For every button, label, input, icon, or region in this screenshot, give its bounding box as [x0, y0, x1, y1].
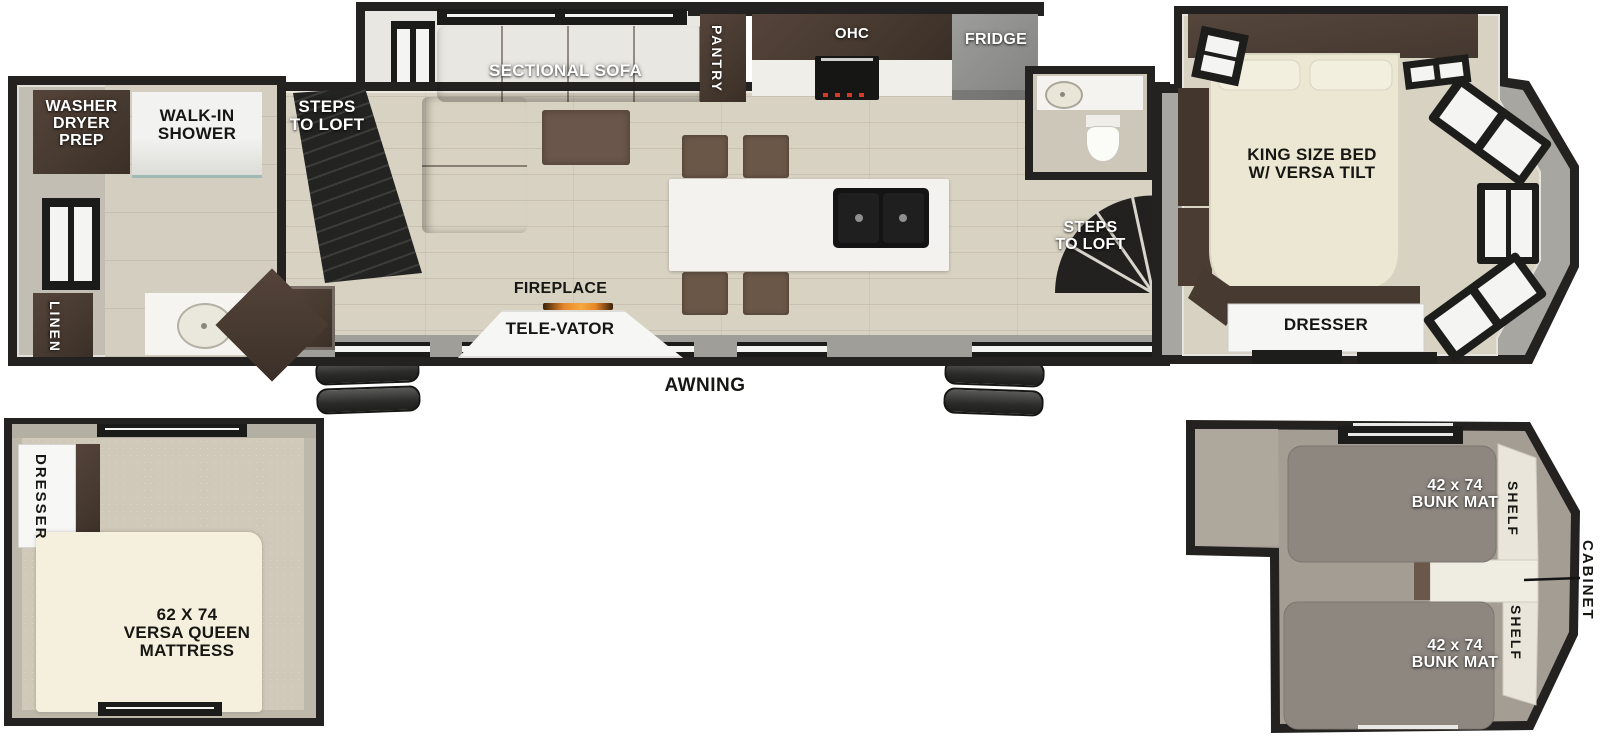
- washer-dryer-label: WASHER DRYER PREP: [33, 99, 130, 150]
- tire: [316, 385, 421, 415]
- dresser-label: DRESSER: [1228, 316, 1424, 334]
- island-stool: [682, 135, 728, 178]
- linen-label: LINEN: [47, 297, 62, 357]
- slideout-left-window: [391, 21, 435, 91]
- front-bedroom: KING SIZE BED W/ VERSA TILT DRESSER: [1152, 0, 1600, 375]
- pantry-label: PANTRY: [709, 18, 724, 100]
- loft-dresser-side: [76, 444, 100, 540]
- ohc-label: OHC: [782, 26, 922, 42]
- dresser-back: [1220, 286, 1420, 306]
- sectional-sofa-chaise: [422, 97, 527, 233]
- stove-handle: [821, 58, 873, 61]
- rv-floorplan-diagram: KING SIZE BED W/ VERSA TILT DRESSER WASH…: [0, 0, 1600, 740]
- bunk-carpet-left: [1195, 429, 1279, 546]
- linen-cabinet: [33, 293, 93, 357]
- awning-wall-window: [972, 342, 1157, 357]
- double-sink: [833, 188, 929, 248]
- bunk-mat-top-label: 42 x 74 BUNK MAT: [1401, 478, 1509, 512]
- fireplace-label: FIREPLACE: [498, 281, 623, 298]
- awning-wall-window: [737, 342, 827, 357]
- stove-knobs: [823, 93, 871, 97]
- kitchen-island: [669, 179, 949, 271]
- steps-to-loft-left-label: STEPS TO LOFT: [272, 98, 382, 134]
- queen-loft: DRESSER 62 X 74 VERSA QUEEN MATTRESS: [4, 418, 324, 726]
- steps-to-loft-right-label: STEPS TO LOFT: [1038, 220, 1143, 254]
- pillow: [1310, 60, 1392, 90]
- island-stool: [743, 135, 789, 178]
- ottoman: [542, 110, 630, 165]
- sectional-sofa-label: SECTIONAL SOFA: [468, 62, 663, 80]
- loft-skylight-top: [97, 424, 247, 437]
- cabinet-end: [1414, 562, 1430, 600]
- walk-in-shower-label: WALK-IN SHOWER: [132, 107, 262, 143]
- bunk-mat-bottom-label: 42 x 74 BUNK MAT: [1401, 638, 1509, 672]
- queen-mattress-label: 62 X 74 VERSA QUEEN MATTRESS: [87, 606, 287, 660]
- fridge-label: FRIDGE: [946, 32, 1046, 49]
- wheel-set-right: [943, 358, 1045, 419]
- loft-dresser-label: DRESSER: [32, 450, 48, 544]
- bath-sink: [1045, 81, 1083, 109]
- fireplace-flame: [543, 303, 613, 310]
- shelf-bottom-label: SHELF: [1508, 594, 1523, 672]
- island-stool: [682, 272, 728, 315]
- tire: [943, 387, 1044, 416]
- shelf-top-label: SHELF: [1505, 470, 1520, 548]
- awning-label: AWNING: [630, 376, 780, 396]
- island-stool: [743, 272, 789, 315]
- tele-vator-label: TELE-VATOR: [495, 320, 625, 338]
- rear-bath-room: WASHER DRYER PREP WALK-IN SHOWER LINEN: [8, 76, 286, 366]
- half-bath: [1025, 66, 1155, 180]
- bunk-loft: 42 x 74 BUNK MAT 42 x 74 BUNK MAT SHELF …: [1158, 410, 1600, 740]
- cabinet-label: CABINET: [1579, 528, 1595, 632]
- cap-window-middle: [1477, 183, 1539, 264]
- king-bed-label: KING SIZE BED W/ VERSA TILT: [1222, 146, 1402, 182]
- loft-skylight-bottom: [98, 702, 222, 716]
- bath-vanity: [1037, 76, 1143, 110]
- slideout-top-window: [437, 9, 687, 25]
- entry-door: [335, 342, 430, 357]
- toilet-bowl: [1086, 126, 1120, 162]
- rear-bath-window: [42, 198, 100, 290]
- stove: [815, 56, 879, 100]
